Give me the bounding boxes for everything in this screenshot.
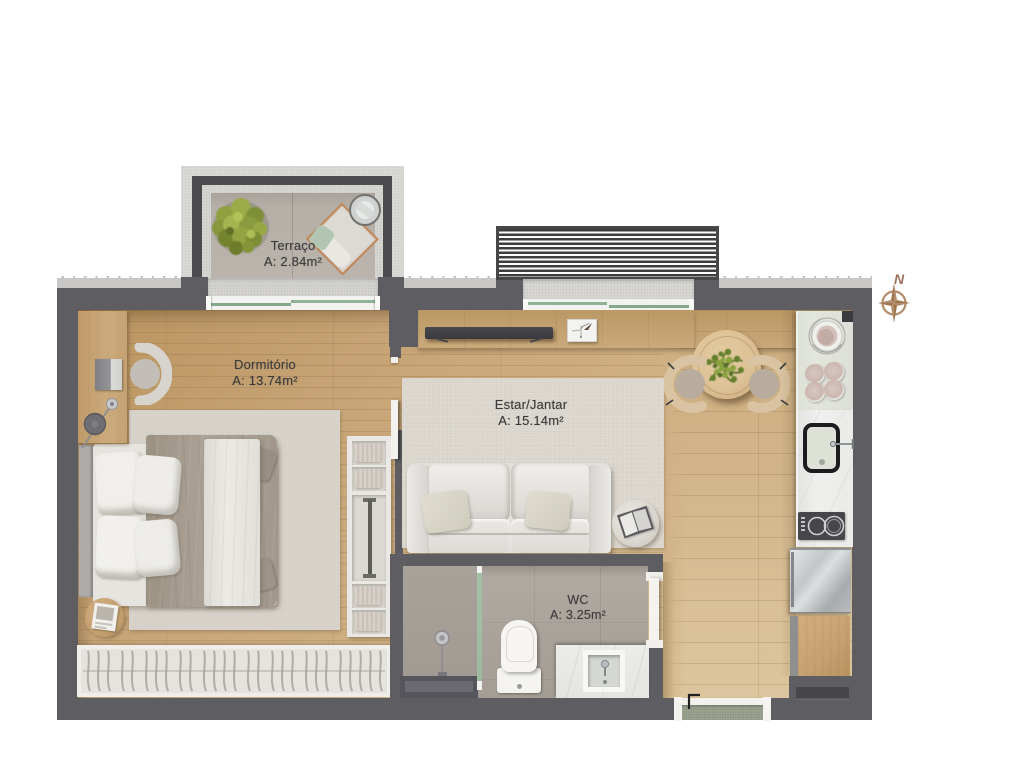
svg-text:N: N (894, 271, 905, 287)
